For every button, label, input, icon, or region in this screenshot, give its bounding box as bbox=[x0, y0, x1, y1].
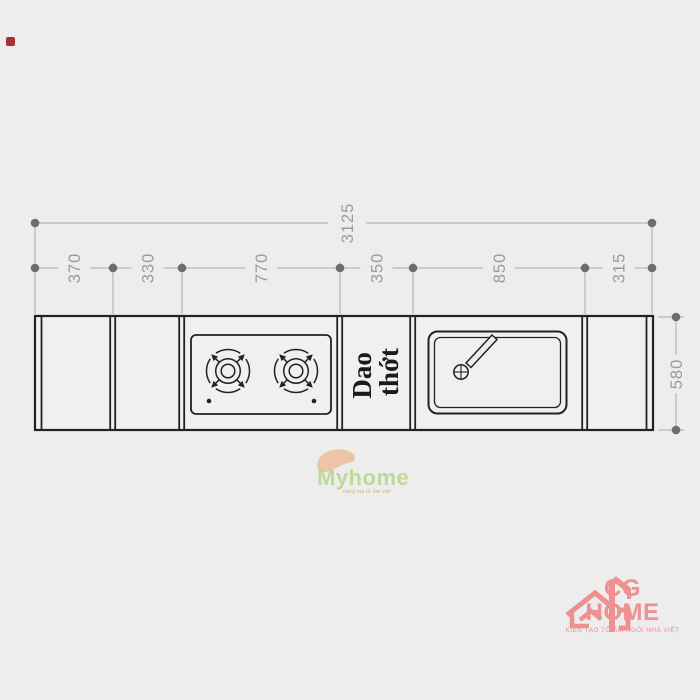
board-label-line1: Dao bbox=[347, 352, 377, 399]
kitchen-plan-canvas: Dao thớt bbox=[0, 0, 700, 700]
cghome-logo: CG HOME KIẾN TẠO TỔ ẤM NGÔI NHÀ VIỆT bbox=[565, 576, 680, 634]
faucet-hole-icon bbox=[454, 365, 468, 379]
segment-label: 770 bbox=[253, 253, 271, 284]
board-label-line2: thớt bbox=[374, 348, 404, 396]
hob-screw-right bbox=[312, 399, 317, 404]
dimension-dot bbox=[31, 219, 40, 228]
segment-label: 370 bbox=[66, 253, 84, 284]
myhome-name: Myhome bbox=[317, 465, 409, 491]
cutting-board-label: Dao thớt bbox=[347, 345, 404, 398]
myhome-tagline: nâng niu tổ ấm việt bbox=[343, 489, 391, 495]
dimension-dot bbox=[409, 264, 418, 273]
dimension-dot bbox=[648, 264, 657, 273]
cghome-house-icon bbox=[565, 576, 631, 633]
dimension-dot bbox=[581, 264, 590, 273]
myhome-watermark: Myhome nâng niu tổ ấm việt bbox=[312, 446, 412, 502]
dimension-dot bbox=[648, 219, 657, 228]
segment-label: 350 bbox=[368, 253, 386, 284]
dimension-dot bbox=[672, 313, 681, 322]
dimension-dot bbox=[178, 264, 187, 273]
hob-screw-left bbox=[207, 399, 212, 404]
segment-label: 315 bbox=[610, 253, 628, 284]
total-width-label: 3125 bbox=[339, 203, 357, 244]
segment-label: 850 bbox=[491, 253, 509, 284]
dimension-dot bbox=[672, 426, 681, 435]
dimension-dot bbox=[109, 264, 118, 273]
depth-label: 580 bbox=[668, 359, 686, 390]
red-marker bbox=[6, 37, 15, 46]
dimension-dot bbox=[31, 264, 40, 273]
segment-label: 330 bbox=[139, 253, 157, 284]
dimension-dot bbox=[336, 264, 345, 273]
